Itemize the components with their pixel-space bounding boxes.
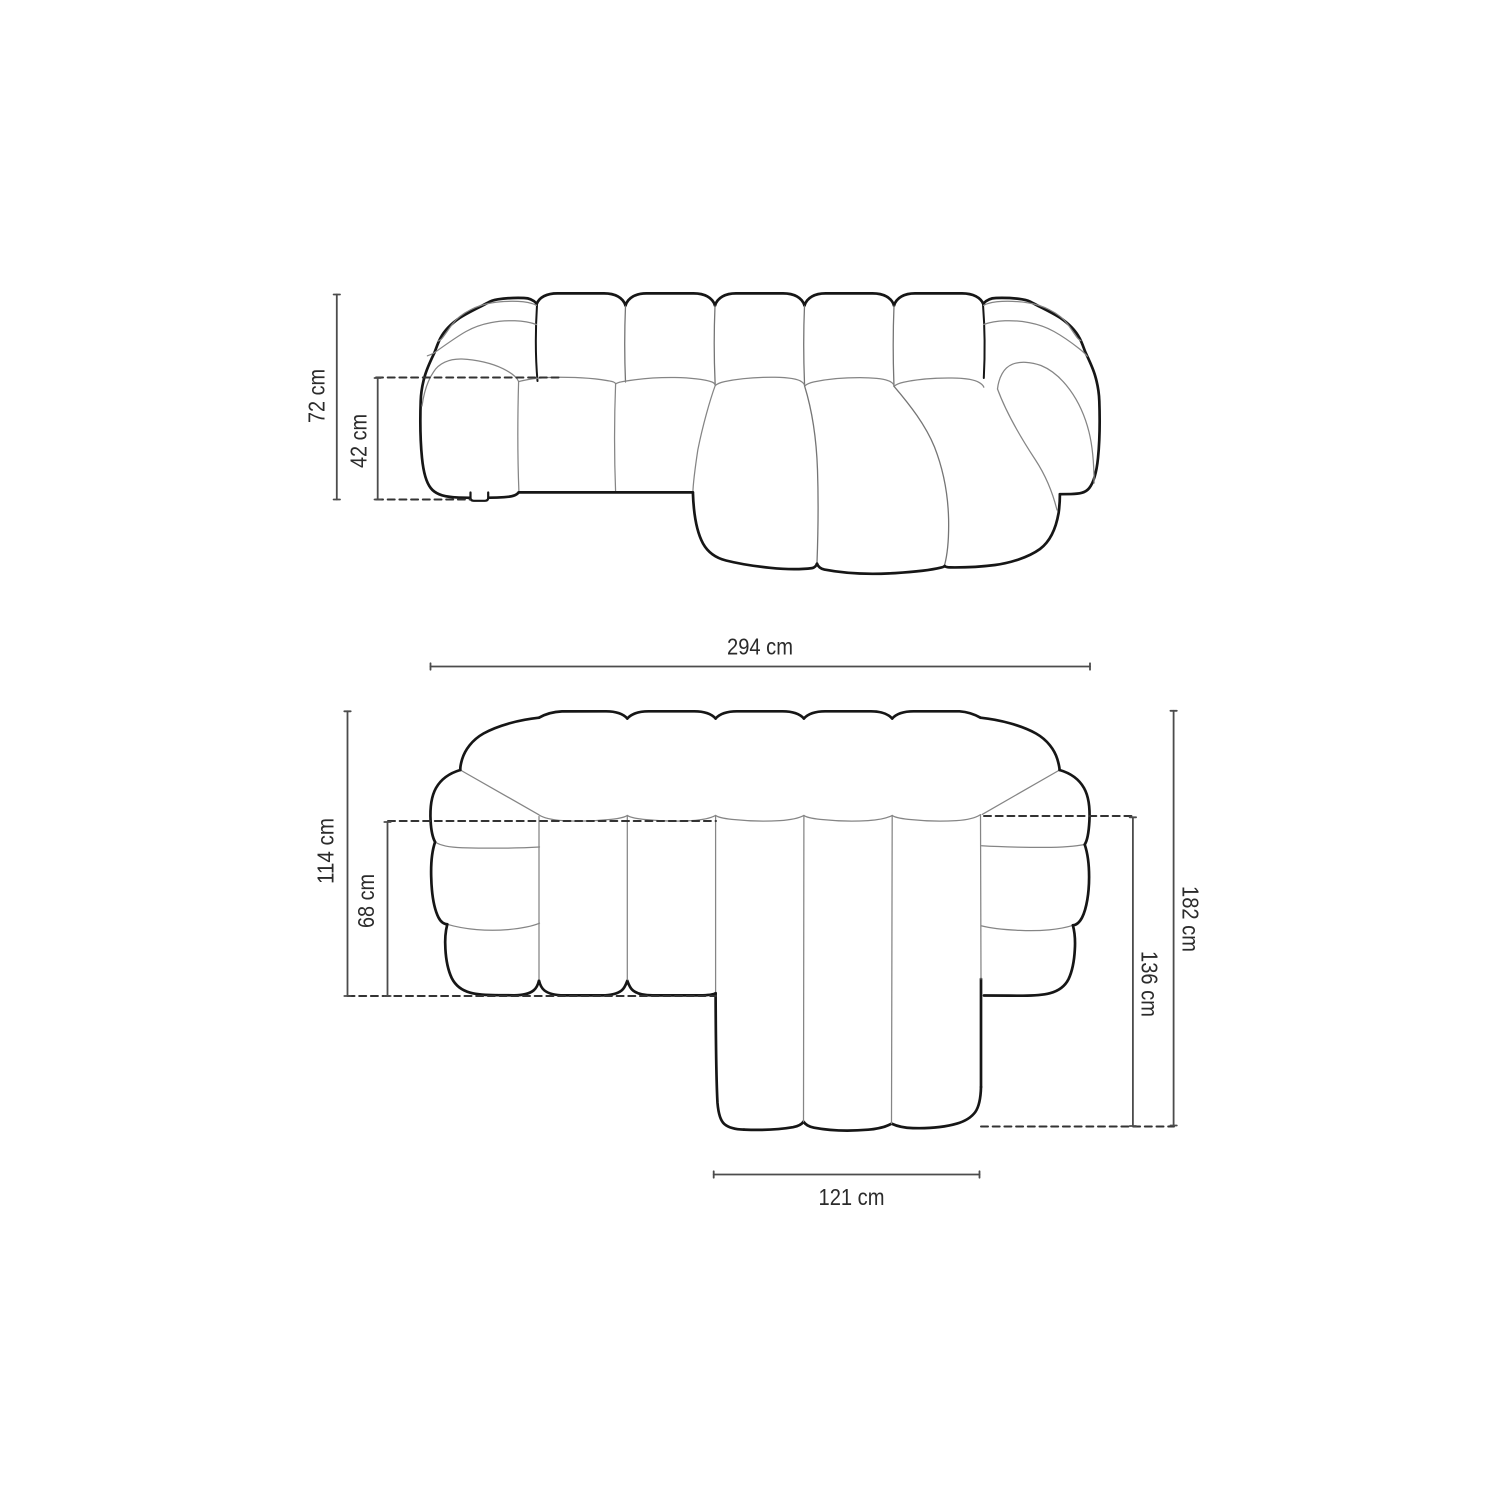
svg-text:182 cm: 182 cm	[1178, 886, 1204, 952]
svg-text:114 cm: 114 cm	[313, 818, 339, 884]
svg-text:72 cm: 72 cm	[304, 369, 330, 423]
svg-text:42 cm: 42 cm	[346, 414, 372, 468]
svg-text:294 cm: 294 cm	[727, 634, 793, 660]
svg-text:136 cm: 136 cm	[1137, 951, 1163, 1017]
svg-text:68 cm: 68 cm	[353, 874, 379, 928]
svg-text:121 cm: 121 cm	[819, 1184, 885, 1210]
